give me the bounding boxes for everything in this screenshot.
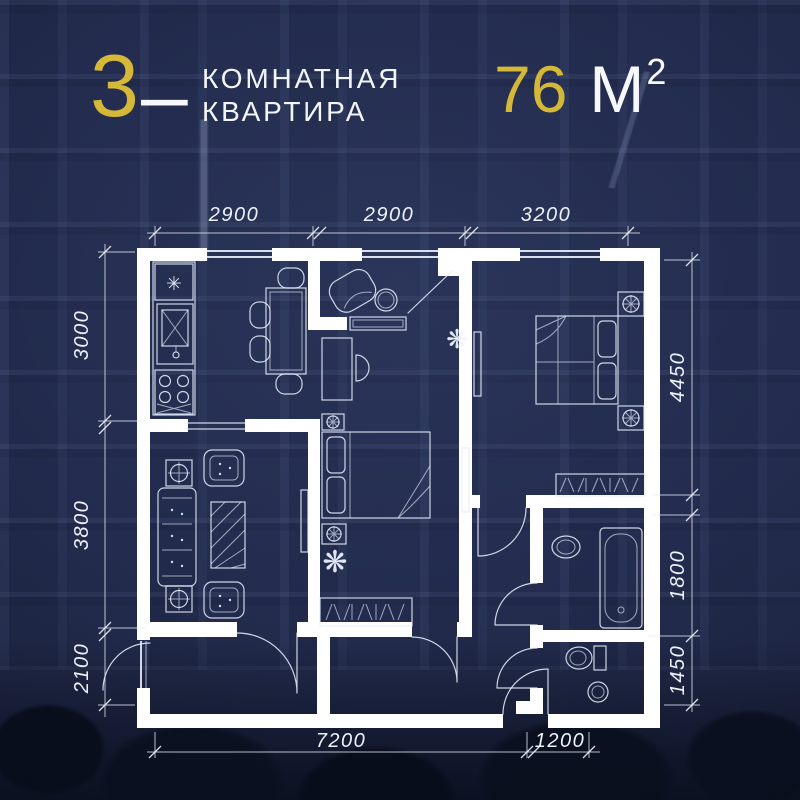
middle-room-window (362, 251, 438, 257)
fridge-snowflake-icon: ✳ (166, 273, 182, 295)
living-room-furniture (158, 450, 308, 618)
dimensions-bottom: 7200 1200 (147, 730, 600, 758)
pillow (327, 437, 345, 473)
dimension-label: 1450 (667, 645, 689, 696)
desk-chair (356, 355, 369, 381)
dining-chair (278, 268, 304, 288)
sofa (158, 488, 196, 586)
tv (301, 490, 308, 552)
dimension-label: 3800 (71, 500, 93, 551)
wc-sink (588, 682, 608, 702)
sideboard (350, 317, 406, 330)
dimension-label: 4450 (667, 352, 689, 403)
sliding-door-rail (185, 423, 245, 429)
pillow (327, 477, 345, 513)
interior-door-leaf (408, 271, 452, 313)
kitchen-furniture: ✳ (153, 262, 195, 415)
dimensions-top: 2900 2900 3200 (147, 204, 640, 246)
room-count: 3 (90, 42, 139, 130)
kitchen-window (207, 251, 272, 257)
area-value: 76 (494, 56, 567, 122)
dimension-label: 7200 (316, 730, 367, 752)
dimension-label: 3200 (521, 204, 572, 226)
pillow (598, 321, 616, 357)
wardrobe (320, 598, 412, 626)
bedroom-door-swing (478, 508, 526, 556)
hall-mirror (474, 332, 481, 396)
dimension-label: 3000 (71, 310, 93, 361)
plant-icon: ❋ (446, 325, 468, 355)
wardrobe (556, 474, 645, 496)
dining-chair (250, 336, 270, 362)
dining-table (266, 288, 306, 374)
dimension-label: 1800 (667, 550, 689, 601)
area-unit: М (589, 56, 644, 122)
balcony-window-door-swing (103, 643, 150, 690)
dining-furniture (250, 268, 306, 394)
dimensions-left: 3000 3800 2100 (71, 244, 146, 717)
wc-fixtures (566, 646, 608, 702)
bed (322, 432, 430, 518)
area-superscript: 2 (646, 54, 666, 90)
poster: 3 – КОМНАТНАЯ КВАРТИРА 76 М 2 (0, 0, 800, 800)
bathroom-fixtures (552, 528, 642, 628)
toilet-tank (594, 646, 606, 670)
bathroom-sink (552, 536, 580, 558)
area-block: 76 М 2 (494, 56, 666, 122)
bathroom-door-swing (495, 583, 537, 625)
dining-chair (250, 302, 270, 328)
plant-icon: ❋ (322, 545, 347, 580)
bed (536, 316, 618, 404)
middle-room-door-swing (412, 637, 457, 682)
armchair (325, 265, 380, 316)
room-count-dash: – (141, 53, 188, 137)
bedroom-window (520, 251, 600, 257)
dimension-label: 2900 (208, 204, 260, 226)
dining-chair (276, 374, 302, 394)
apartment-type-title: КОМНАТНАЯ КВАРТИРА (202, 62, 401, 128)
title-line-2: КВАРТИРА (202, 95, 401, 128)
balcony-door-swing (237, 633, 297, 693)
desk (322, 338, 352, 400)
stove (155, 370, 193, 414)
title-line-1: КОМНАТНАЯ (202, 62, 401, 95)
dimension-label: 1200 (535, 730, 586, 752)
bedroom-furniture (536, 292, 645, 496)
dimension-label: 2900 (363, 204, 415, 226)
dimension-label: 2100 (71, 643, 93, 695)
pillow (598, 363, 616, 399)
